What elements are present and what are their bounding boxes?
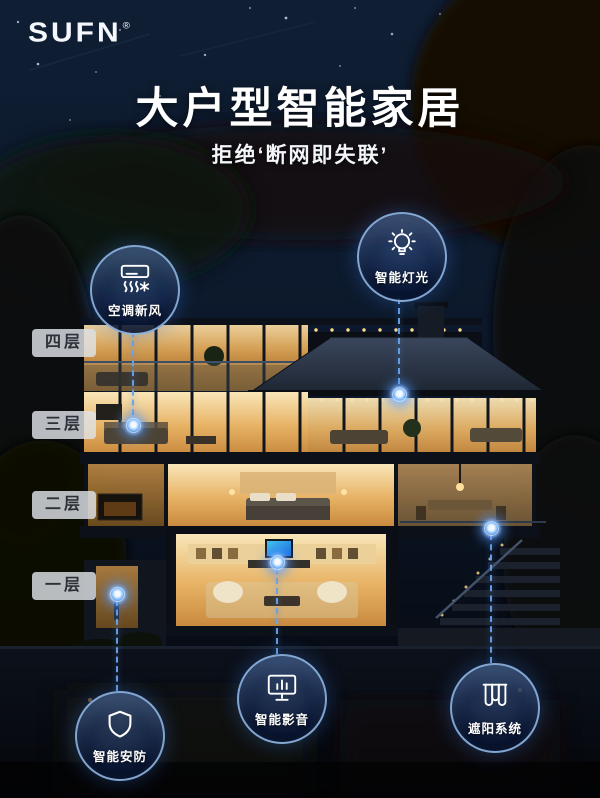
brand-logo: SUFN®	[28, 17, 130, 48]
poster-title: 大户型智能家居	[0, 74, 600, 136]
poster-subtitle: 拒绝‘断网即失联’	[0, 139, 600, 169]
connector-line-shading	[490, 534, 492, 663]
floor-label-2: 二层	[32, 491, 96, 519]
registered-mark: ®	[123, 21, 130, 31]
glow-dot-shading	[484, 521, 499, 536]
callout-label: 智能灯光	[375, 267, 429, 286]
floor-label-4: 四层	[32, 329, 96, 357]
connector-line-lighting	[398, 298, 400, 394]
floor-label-3: 三层	[32, 411, 96, 439]
callout-hvac: 空调新风	[90, 245, 180, 335]
callout-label: 空调新风	[108, 300, 162, 319]
monitor-equalizer-icon	[265, 671, 299, 705]
connector-line-hvac	[132, 331, 134, 425]
brand-logo-text: SUFN	[28, 17, 122, 47]
curtain-icon	[478, 680, 512, 714]
light-bulb-icon	[385, 229, 419, 263]
floor-label-1: 一层	[32, 572, 96, 600]
callout-av: 智能影音	[237, 654, 327, 744]
callout-security: 智能安防	[75, 691, 165, 781]
glow-dot-av	[270, 555, 285, 570]
callout-label: 智能影音	[255, 709, 309, 728]
connector-line-av	[276, 568, 278, 654]
air-conditioner-icon	[118, 262, 152, 296]
glow-dot-lighting	[392, 387, 407, 402]
callout-label: 智能安防	[93, 746, 147, 765]
callout-lighting: 智能灯光	[357, 212, 447, 302]
shield-icon	[103, 708, 137, 742]
glow-dot-hvac	[126, 418, 141, 433]
callout-shading: 遮阳系统	[450, 663, 540, 753]
glow-dot-security	[110, 587, 125, 602]
connector-line-security	[116, 600, 118, 691]
smart-home-poster: SUFN® 大户型智能家居 拒绝‘断网即失联’ 四层 三层 二层 一层 空调新风	[0, 0, 600, 798]
callout-label: 遮阳系统	[468, 718, 522, 737]
